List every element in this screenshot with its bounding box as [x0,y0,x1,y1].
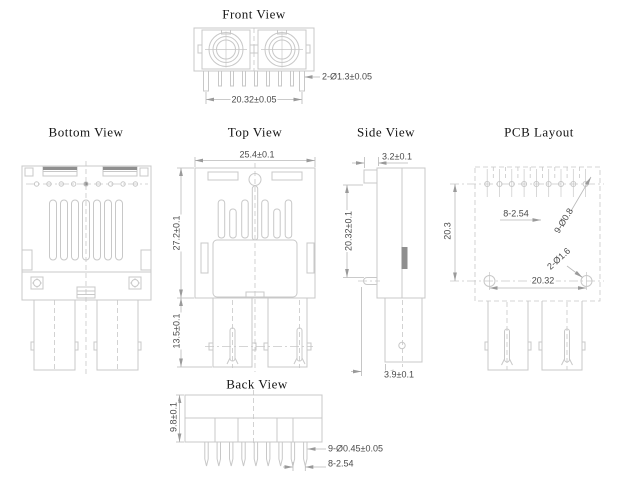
pcb-layout-holes [484,169,592,370]
back-pin-pitch-dimension: 8-2.54 [328,460,354,469]
side-flange-dimension: 3.2±0.1 [381,153,413,162]
side-view-title: Side View [357,126,415,139]
back-body-height-dimension: 9.8±0.1 [170,401,179,433]
top-leg-height-dimension: 13.5±0.1 [173,313,182,350]
pcb-hole-span-y-dimension: 20.3 [444,221,453,241]
pcb-hole-pitch-dimension: 8-2.54 [502,210,530,219]
front-pin-span-dimension: 20.32±0.05 [231,96,278,105]
top-body-width-dimension: 25.4±0.1 [239,151,276,160]
bottom-view-body [22,166,151,370]
top-body-height-dimension: 27.2±0.1 [173,215,182,252]
front-pin-diameter-dimension: 2-Ø1.3±0.05 [322,73,372,82]
side-leg-width-dimension: 3.9±0.1 [383,371,415,380]
technical-drawing-page: Front View 2-Ø1.3±0.05 20.32±0.05 Bottom… [0,0,625,485]
back-pin-diameter-dimension: 9-Ø0.45±0.05 [328,445,383,454]
front-view-title: Front View [222,8,286,21]
top-view-title: Top View [228,126,282,139]
bottom-view-title: Bottom View [49,126,124,139]
pcb-hole-span-x-dimension: 20.32 [531,277,556,286]
drawing-linework [0,0,625,485]
back-view-title: Back View [226,378,288,391]
pcb-layout-title: PCB Layout [504,126,574,139]
side-view-body [364,168,426,362]
side-body-height-dimension: 20.32±0.1 [345,210,354,252]
